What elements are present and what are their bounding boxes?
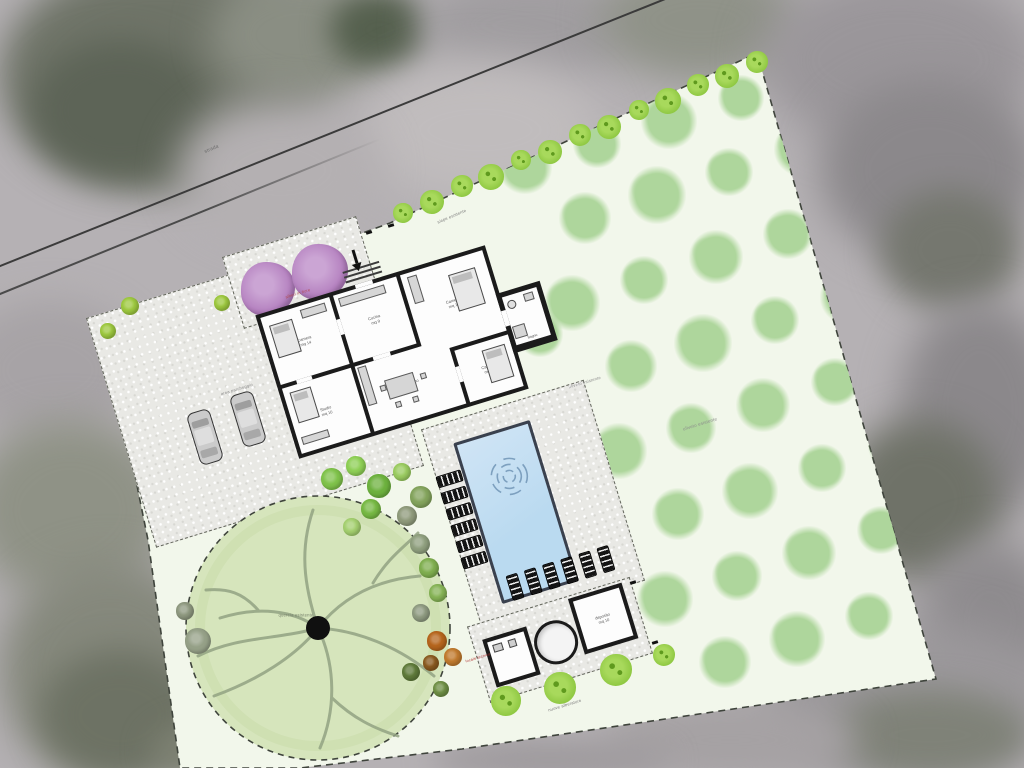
plan-label: uliveto esistente — [682, 416, 718, 431]
annotation-labels-layer: stradasiepe esistenteuliveto esistenteul… — [0, 0, 1024, 768]
plan-label: nuove alberature — [548, 699, 583, 714]
plan-label: siepe esistente — [437, 209, 467, 226]
plan-label: quercia esistente — [278, 614, 313, 619]
plan-label: alberi in fiore — [285, 288, 311, 300]
plan-label: strada — [204, 144, 220, 155]
site-plan-canvas: Cameramq 14Cucinamq 9Cameramq 16Soggiorn… — [0, 0, 1024, 768]
plan-label: uliveto esistente — [568, 376, 601, 390]
plan-label: locale tecnico — [465, 652, 491, 664]
plan-label: area parcheggio — [220, 383, 253, 397]
